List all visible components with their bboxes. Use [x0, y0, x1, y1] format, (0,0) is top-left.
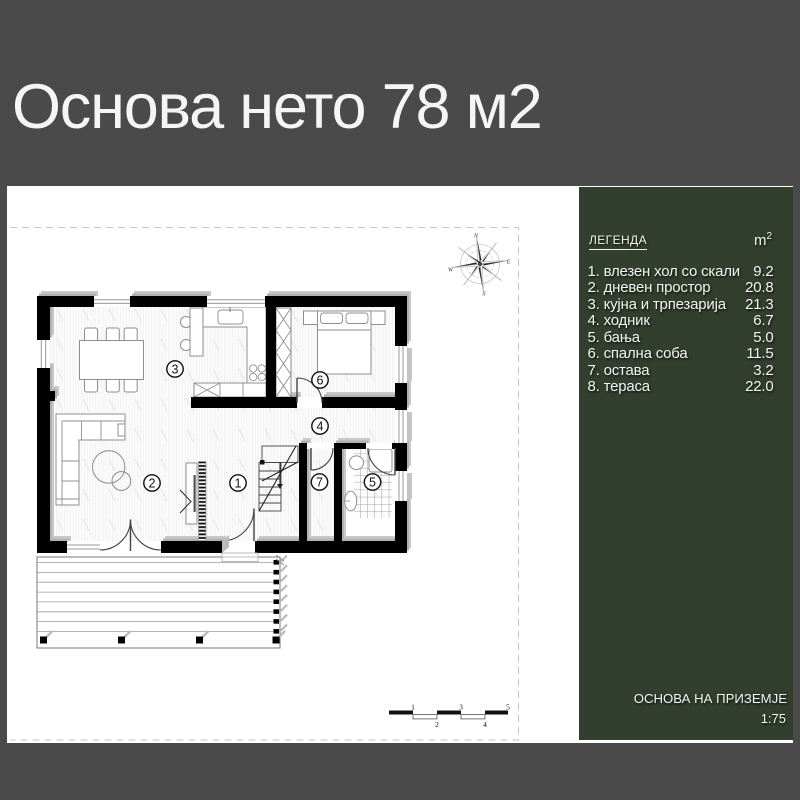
svg-text:4: 4: [317, 419, 324, 433]
svg-text:5: 5: [369, 475, 376, 489]
svg-text:1: 1: [411, 703, 415, 712]
svg-text:2: 2: [435, 720, 439, 729]
svg-text:E: E: [506, 259, 511, 266]
svg-text:W: W: [448, 267, 454, 274]
svg-text:S: S: [482, 291, 485, 298]
svg-text:6: 6: [317, 373, 324, 387]
svg-text:2: 2: [149, 476, 156, 490]
svg-text:3: 3: [172, 362, 179, 376]
svg-text:1: 1: [235, 476, 242, 490]
svg-text:7: 7: [316, 475, 323, 489]
svg-text:4: 4: [483, 720, 487, 729]
svg-text:3: 3: [459, 703, 463, 712]
svg-text:N: N: [473, 233, 479, 240]
svg-text:5: 5: [506, 703, 510, 712]
